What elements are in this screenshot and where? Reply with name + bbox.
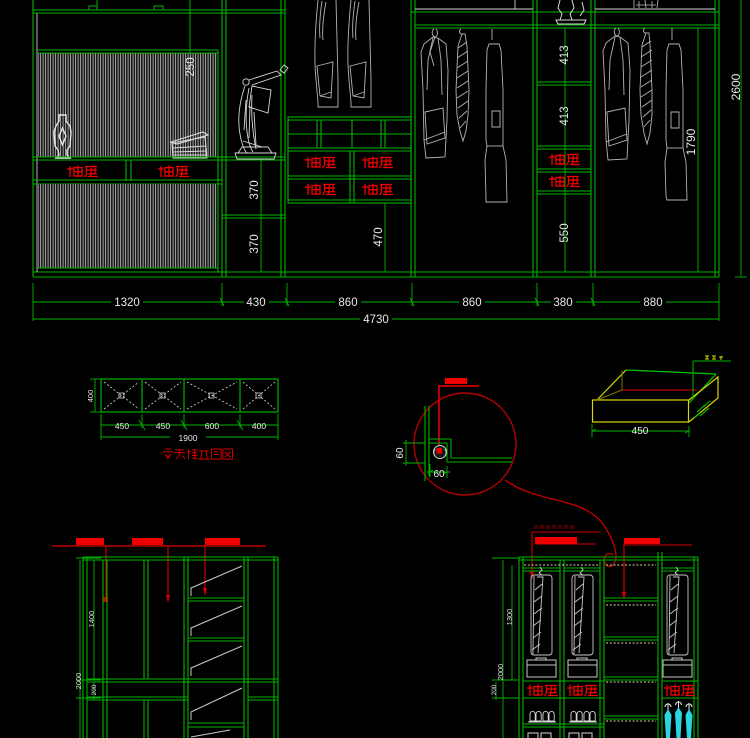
svg-text:880: 880	[643, 297, 662, 309]
svg-text:200: 200	[91, 684, 98, 695]
svg-text:1300: 1300	[505, 609, 514, 626]
svg-text:1900: 1900	[179, 433, 198, 443]
svg-text:60: 60	[433, 469, 445, 480]
svg-text:2000: 2000	[496, 664, 505, 681]
svg-text:4730: 4730	[363, 314, 389, 326]
svg-text:400: 400	[252, 421, 266, 431]
svg-text:600: 600	[205, 421, 219, 431]
svg-text:250: 250	[185, 57, 197, 76]
svg-text:470: 470	[373, 227, 385, 246]
svg-text:413: 413	[559, 45, 571, 64]
svg-text:450: 450	[632, 426, 649, 437]
svg-text:370: 370	[249, 180, 261, 199]
svg-text:860: 860	[338, 297, 357, 309]
svg-text:400: 400	[86, 390, 95, 403]
svg-text:1320: 1320	[114, 297, 140, 309]
svg-text:860: 860	[462, 297, 481, 309]
svg-text:200: 200	[491, 684, 498, 695]
svg-text:1790: 1790	[684, 128, 698, 155]
svg-text:2000: 2000	[74, 673, 83, 690]
svg-text:450: 450	[115, 421, 129, 431]
svg-text:450: 450	[156, 421, 170, 431]
svg-text:2600: 2600	[729, 73, 743, 100]
svg-text:380: 380	[553, 297, 572, 309]
svg-text:413: 413	[559, 106, 571, 125]
svg-text:1400: 1400	[87, 611, 96, 628]
svg-text:60: 60	[395, 447, 406, 459]
svg-text:370: 370	[249, 234, 261, 253]
svg-text:550: 550	[559, 223, 571, 242]
svg-text:430: 430	[246, 297, 265, 309]
